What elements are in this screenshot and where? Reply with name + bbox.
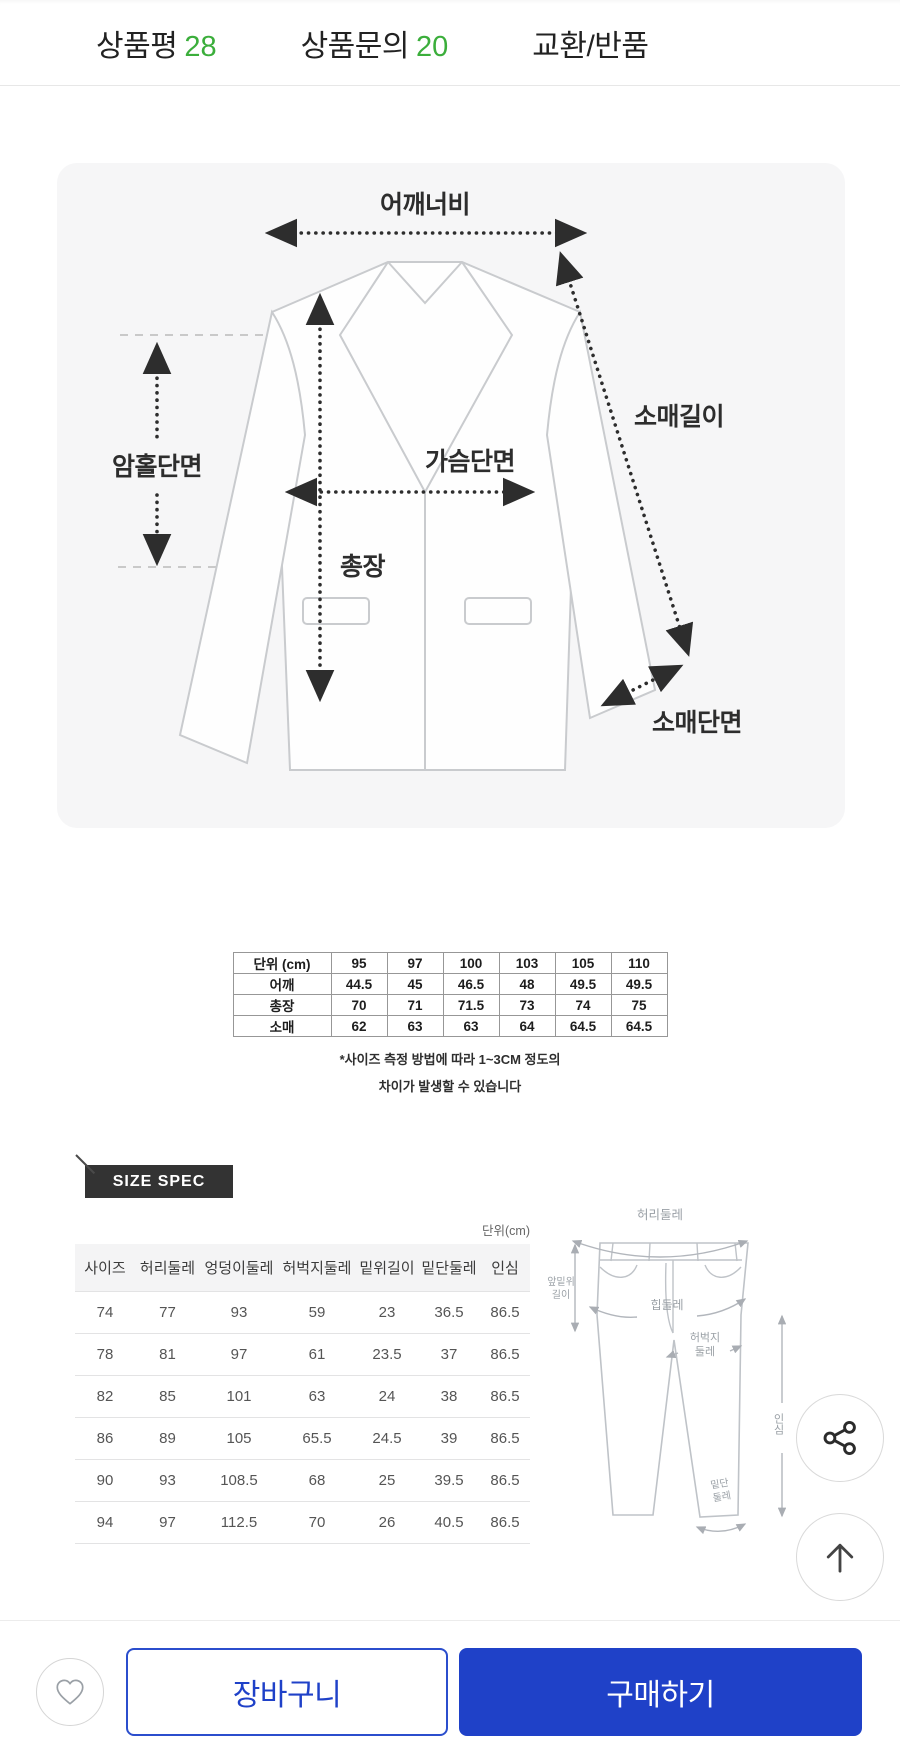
table-cell: 97 (200, 1334, 278, 1376)
table-cell: 64.5 (611, 1016, 667, 1037)
table-cell: 46.5 (443, 974, 499, 995)
table-cell: 108.5 (200, 1460, 278, 1502)
size-note-line2: 차이가 발생할 수 있습니다 (0, 1073, 900, 1100)
table-cell: 37 (418, 1334, 480, 1376)
table-cell: 105 (555, 953, 611, 974)
table-row: 총장707171.5737475 (233, 995, 667, 1016)
table-cell: 103 (499, 953, 555, 974)
jacket-measurement-card: 어깨너비 암홀단면 소매길이 가슴단면 총장 소매단면 (57, 163, 845, 828)
badge-corner-decoration (75, 1154, 95, 1174)
table-cell: 62 (331, 1016, 387, 1037)
table-cell: 105 (200, 1418, 278, 1460)
table-cell: 49.5 (555, 974, 611, 995)
table-cell: 71.5 (443, 995, 499, 1016)
table-cell: 93 (200, 1292, 278, 1334)
table-cell: 39.5 (418, 1460, 480, 1502)
product-detail-page: 상품평 28 상품문의 20 교환/반품 (0, 0, 900, 1762)
table-cell: 97 (135, 1502, 200, 1544)
table-cell: 81 (135, 1334, 200, 1376)
wishlist-button[interactable] (36, 1658, 104, 1726)
table-cell: 밑단둘레 (418, 1244, 480, 1292)
size-spec-title: SIZE SPEC (113, 1173, 206, 1191)
size-spec-badge: SIZE SPEC (85, 1165, 233, 1198)
add-to-cart-button[interactable]: 장바구니 (126, 1648, 448, 1736)
buy-now-button[interactable]: 구매하기 (459, 1648, 862, 1736)
table-row: 7881976123.53786.5 (75, 1334, 530, 1376)
table-cell: 101 (200, 1376, 278, 1418)
scroll-to-top-button[interactable] (796, 1513, 884, 1601)
table-cell: 단위 (cm) (233, 953, 331, 974)
table-cell: 63 (443, 1016, 499, 1037)
table-cell: 94 (75, 1502, 135, 1544)
table-cell: 59 (278, 1292, 356, 1334)
arrow-up-icon (820, 1537, 860, 1577)
label-sleeve-hem: 소매단면 (652, 709, 742, 737)
share-icon (821, 1419, 859, 1457)
size-spec-section: SIZE SPEC 단위(cm) 사이즈허리둘레엉덩이둘레허벅지둘레밑위길이밑단… (0, 1160, 900, 1560)
table-cell: 86 (75, 1418, 135, 1460)
table-cell: 24.5 (356, 1418, 418, 1460)
label-armhole: 암홀단면 (112, 453, 202, 481)
label-pants-front-rise-line2: 길이 (552, 1288, 570, 1301)
table-cell: 85 (135, 1376, 200, 1418)
size-note-line1: *사이즈 측정 방법에 따라 1~3CM 정도의 (0, 1046, 900, 1073)
table-row: 9497112.5702640.586.5 (75, 1502, 530, 1544)
label-shoulder-width: 어깨너비 (380, 191, 470, 219)
table-cell: 63 (387, 1016, 443, 1037)
table-cell: 엉덩이둘레 (200, 1244, 278, 1292)
table-cell: 61 (278, 1334, 356, 1376)
tab-inquiries-label: 상품문의 (301, 21, 409, 65)
jacket-outline (180, 262, 655, 770)
table-cell: 86.5 (480, 1334, 530, 1376)
table-cell: 70 (331, 995, 387, 1016)
table-cell: 허리둘레 (135, 1244, 200, 1292)
table-cell: 25 (356, 1460, 418, 1502)
table-cell: 23 (356, 1292, 418, 1334)
table-cell: 68 (278, 1460, 356, 1502)
table-cell: 49.5 (611, 974, 667, 995)
table-cell: 사이즈 (75, 1244, 135, 1292)
share-button[interactable] (796, 1394, 884, 1482)
tab-reviews-count: 28 (184, 31, 216, 64)
label-sleeve-length: 소매길이 (634, 403, 724, 431)
pants-size-table: 사이즈허리둘레엉덩이둘레허벅지둘레밑위길이밑단둘레인심 747793592336… (75, 1244, 530, 1544)
tab-reviews-label: 상품평 (96, 21, 177, 65)
table-cell: 112.5 (200, 1502, 278, 1544)
table-cell: 38 (418, 1376, 480, 1418)
table-cell: 82 (75, 1376, 135, 1418)
table-cell: 48 (499, 974, 555, 995)
heart-icon (54, 1677, 86, 1707)
table-cell: 총장 (233, 995, 331, 1016)
product-tab-bar: 상품평 28 상품문의 20 교환/반품 (0, 0, 900, 86)
table-cell: 36.5 (418, 1292, 480, 1334)
table-cell: 78 (75, 1334, 135, 1376)
add-to-cart-label: 장바구니 (233, 1670, 341, 1714)
label-pants-thigh-line1: 허벅지 (690, 1331, 720, 1344)
table-cell: 110 (611, 953, 667, 974)
table-row: 단위 (cm)9597100103105110 (233, 953, 667, 974)
table-cell: 23.5 (356, 1334, 418, 1376)
tab-inquiries[interactable]: 상품문의 20 (301, 21, 449, 65)
jacket-size-table: 단위 (cm)9597100103105110 어깨44.54546.54849… (233, 952, 668, 1037)
label-total-length: 총장 (340, 553, 386, 581)
table-cell: 63 (278, 1376, 356, 1418)
table-row: 어깨44.54546.54849.549.5 (233, 974, 667, 995)
pants-measurement-diagram: 허리둘레 앞밑위 길이 힙둘레 허벅지 둘레 인심 밑단 둘레 (545, 1185, 795, 1545)
table-cell: 64.5 (555, 1016, 611, 1037)
table-row: 9093108.5682539.586.5 (75, 1460, 530, 1502)
table-cell: 39 (418, 1418, 480, 1460)
table-cell: 24 (356, 1376, 418, 1418)
table-cell: 허벅지둘레 (278, 1244, 356, 1292)
tab-inquiries-count: 20 (416, 31, 448, 64)
table-cell: 100 (443, 953, 499, 974)
label-pants-thigh-line2: 둘레 (695, 1345, 715, 1358)
table-cell: 75 (611, 995, 667, 1016)
table-cell: 93 (135, 1460, 200, 1502)
table-cell: 74 (75, 1292, 135, 1334)
table-cell: 77 (135, 1292, 200, 1334)
tab-exchange-returns[interactable]: 교환/반품 (532, 21, 648, 65)
label-chest-width: 가슴단면 (425, 448, 515, 476)
table-cell: 86.5 (480, 1292, 530, 1334)
table-cell: 인심 (480, 1244, 530, 1292)
table-cell: 소매 (233, 1016, 331, 1037)
table-cell: 26 (356, 1502, 418, 1544)
table-cell: 90 (75, 1460, 135, 1502)
table-cell: 89 (135, 1418, 200, 1460)
size-note: *사이즈 측정 방법에 따라 1~3CM 정도의 차이가 발생할 수 있습니다 (0, 1046, 900, 1100)
table-cell: 40.5 (418, 1502, 480, 1544)
label-pants-front-rise-line1: 앞밑위 (547, 1275, 575, 1288)
table-cell: 45 (387, 974, 443, 995)
table-cell: 95 (331, 953, 387, 974)
table-cell: 65.5 (278, 1418, 356, 1460)
table-cell: 97 (387, 953, 443, 974)
table-row: 소매6263636464.564.5 (233, 1016, 667, 1037)
tab-exchange-returns-label: 교환/반품 (532, 21, 648, 65)
pants-table-unit-label: 단위(cm) (430, 1220, 530, 1239)
table-cell: 밑위길이 (356, 1244, 418, 1292)
tab-reviews[interactable]: 상품평 28 (96, 21, 217, 65)
table-cell: 어깨 (233, 974, 331, 995)
table-row: 868910565.524.53986.5 (75, 1418, 530, 1460)
table-cell: 86.5 (480, 1460, 530, 1502)
bottom-purchase-bar: 장바구니 구매하기 (0, 1620, 900, 1762)
jacket-measurement-diagram: 어깨너비 암홀단면 소매길이 가슴단면 총장 소매단면 (57, 163, 845, 828)
table-cell: 71 (387, 995, 443, 1016)
label-pants-waist: 허리둘레 (637, 1208, 683, 1222)
table-cell: 86.5 (480, 1502, 530, 1544)
table-row: 828510163243886.5 (75, 1376, 530, 1418)
table-cell: 86.5 (480, 1376, 530, 1418)
table-header-row: 사이즈허리둘레엉덩이둘레허벅지둘레밑위길이밑단둘레인심 (75, 1244, 530, 1292)
table-row: 747793592336.586.5 (75, 1292, 530, 1334)
jacket-size-table-section: 단위 (cm)9597100103105110 어깨44.54546.54849… (0, 952, 900, 1100)
table-cell: 70 (278, 1502, 356, 1544)
pants-outline (597, 1243, 748, 1517)
table-cell: 64 (499, 1016, 555, 1037)
table-cell: 73 (499, 995, 555, 1016)
table-cell: 74 (555, 995, 611, 1016)
label-pants-hip: 힙둘레 (650, 1298, 683, 1312)
table-cell: 44.5 (331, 974, 387, 995)
buy-now-label: 구매하기 (606, 1670, 714, 1714)
table-cell: 86.5 (480, 1418, 530, 1460)
label-pants-inseam: 인심 (772, 1413, 784, 1435)
